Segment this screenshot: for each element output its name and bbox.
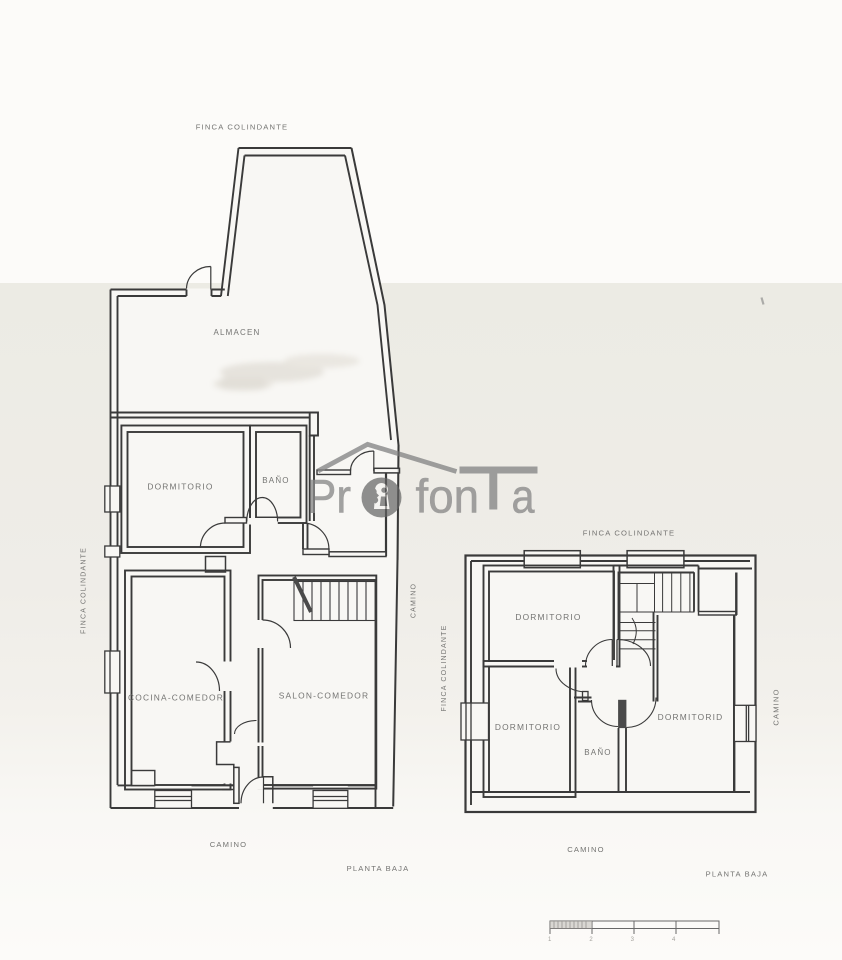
svg-text:FINCA COLINDANTE: FINCA COLINDANTE bbox=[583, 529, 676, 538]
svg-text:PLANTA BAJA: PLANTA BAJA bbox=[706, 870, 769, 879]
svg-text:Pr: Pr bbox=[307, 470, 351, 523]
svg-text:COCINA-COMEDOR: COCINA-COMEDOR bbox=[128, 693, 224, 703]
svg-text:BAÑO: BAÑO bbox=[584, 748, 611, 757]
svg-text:DORMITORIO: DORMITORIO bbox=[147, 482, 213, 492]
svg-text:CAMINO: CAMINO bbox=[567, 845, 605, 854]
svg-text:CAMINO: CAMINO bbox=[772, 688, 781, 725]
svg-text:DORMITORID: DORMITORID bbox=[658, 712, 724, 722]
svg-text:DORMITORIO: DORMITORIO bbox=[495, 722, 561, 732]
svg-text:DORMITORIO: DORMITORIO bbox=[515, 612, 581, 622]
svg-text:CAMINO: CAMINO bbox=[210, 840, 248, 849]
svg-text:BAÑO: BAÑO bbox=[262, 476, 289, 485]
svg-text:PLANTA BAJA: PLANTA BAJA bbox=[347, 864, 410, 873]
svg-text:SALON-COMEDOR: SALON-COMEDOR bbox=[279, 691, 370, 701]
svg-text:fon: fon bbox=[416, 470, 480, 523]
svg-text:1234: 1234 bbox=[548, 937, 713, 943]
svg-text:CAMINO: CAMINO bbox=[411, 583, 418, 618]
svg-text:FINCA COLINDANTE: FINCA COLINDANTE bbox=[81, 547, 88, 634]
svg-text:ALMACEN: ALMACEN bbox=[213, 328, 260, 337]
svg-text:FINCA COLINDANTE: FINCA COLINDANTE bbox=[196, 123, 289, 132]
svg-text:FINCA COLINDANTE: FINCA COLINDANTE bbox=[441, 625, 448, 712]
svg-text:a: a bbox=[512, 470, 536, 523]
